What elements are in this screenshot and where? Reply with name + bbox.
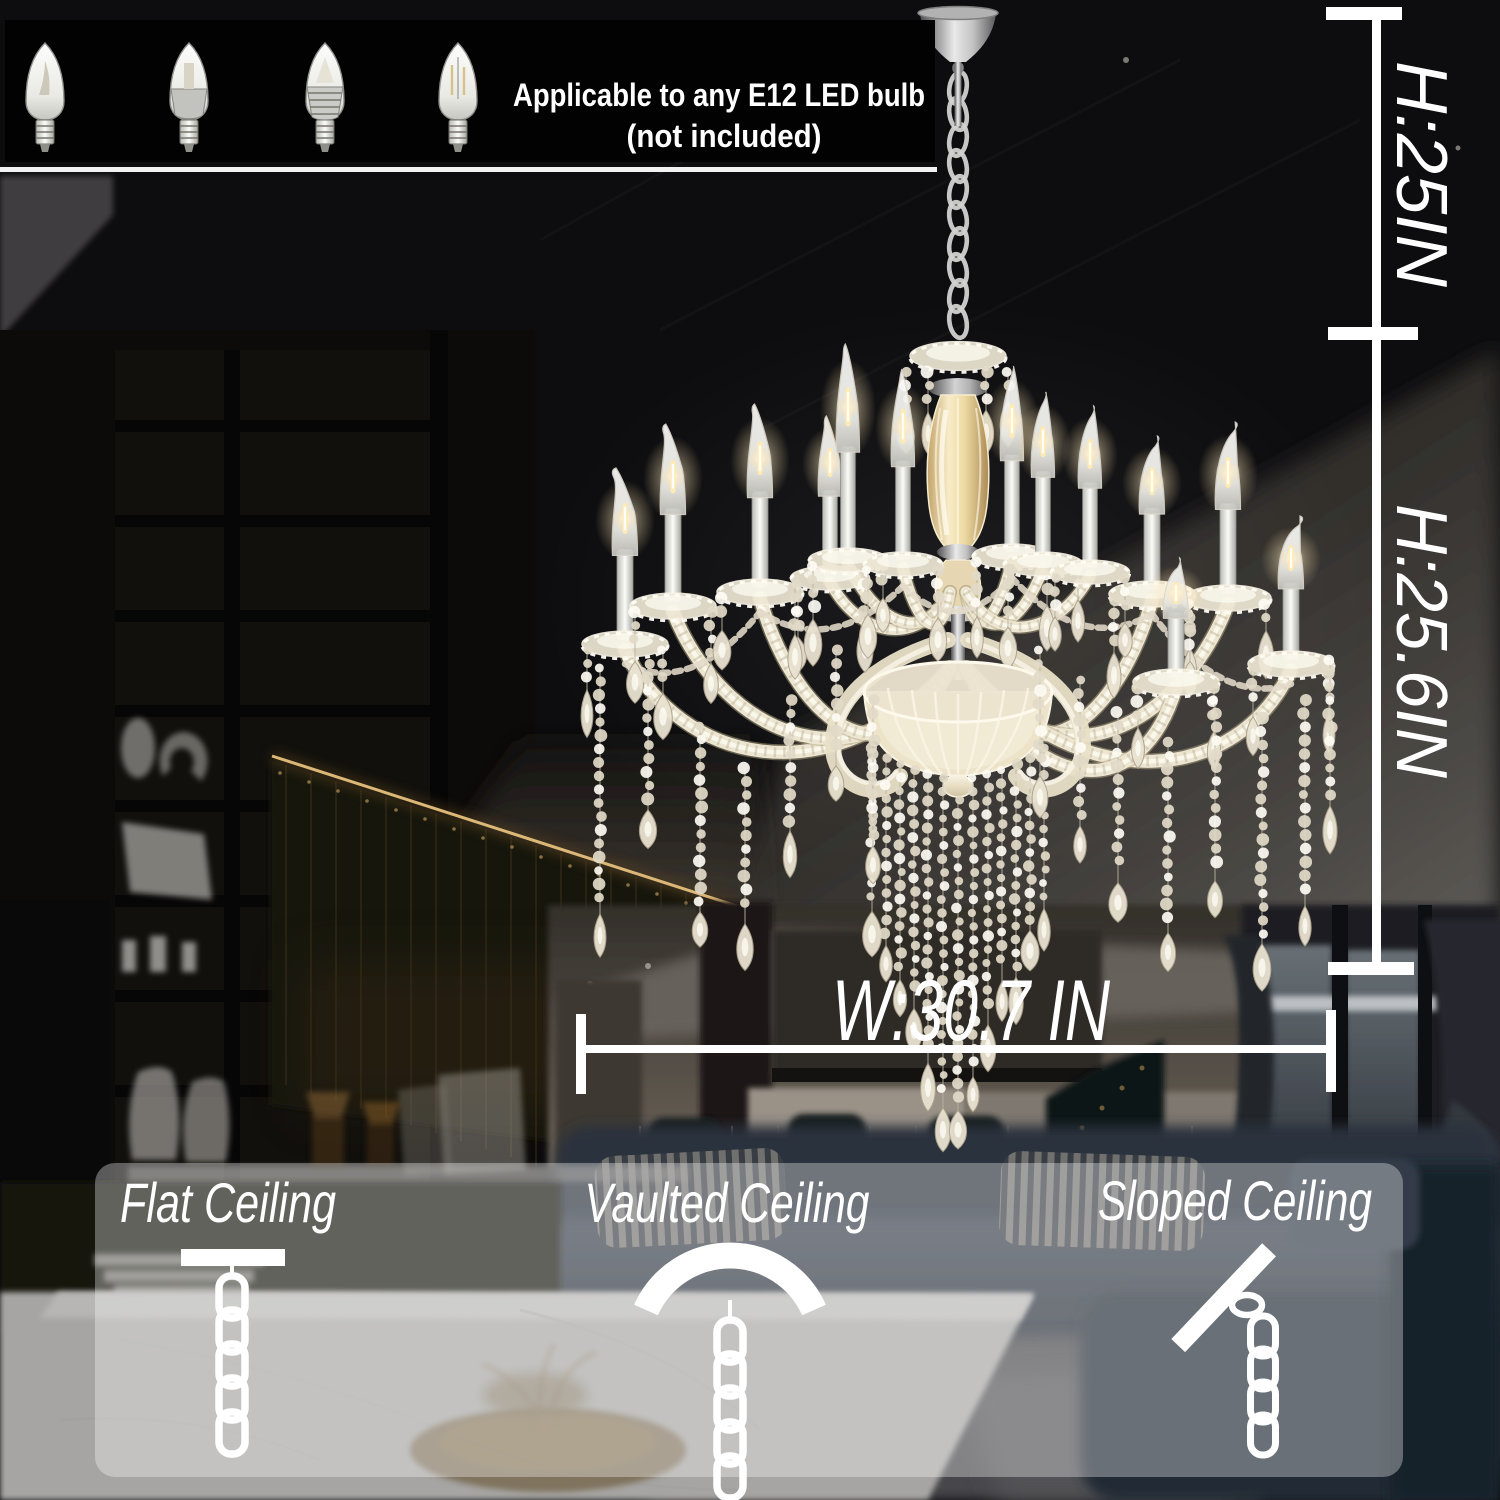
svg-text:Flat Ceiling: Flat Ceiling bbox=[120, 1171, 336, 1234]
svg-text:W:30.7 IN: W:30.7 IN bbox=[832, 963, 1111, 1059]
svg-text:Sloped Ceiling: Sloped Ceiling bbox=[1098, 1169, 1372, 1232]
svg-text:Vaulted Ceiling: Vaulted Ceiling bbox=[585, 1171, 870, 1234]
svg-text:H:25IN: H:25IN bbox=[1381, 61, 1461, 288]
svg-text:(not included): (not included) bbox=[627, 118, 822, 154]
svg-text:Applicable to any E12 LED bulb: Applicable to any E12 LED bulb bbox=[513, 77, 925, 113]
svg-text:H:25.6IN: H:25.6IN bbox=[1381, 504, 1461, 779]
